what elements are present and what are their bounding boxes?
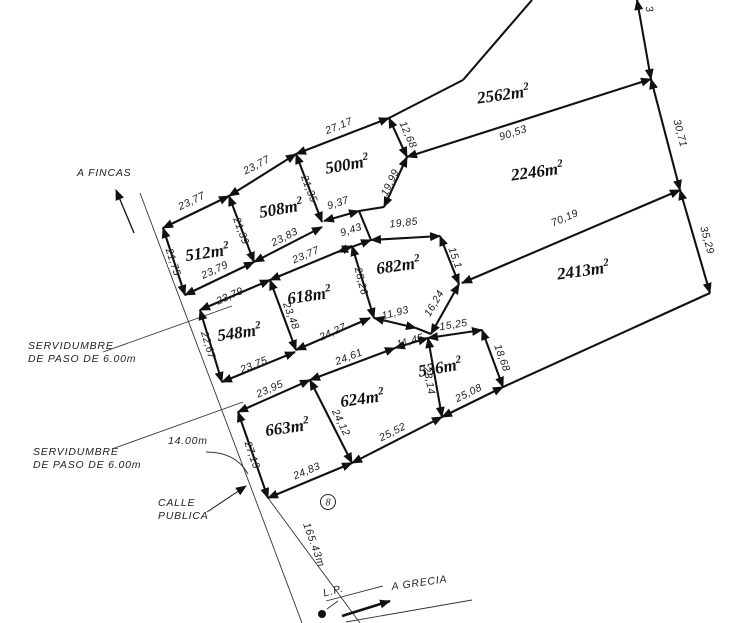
calle-publica-leader-arrow	[207, 486, 246, 512]
edge-dimension-label: 25,08	[452, 382, 484, 406]
parcel-618-label: 618m2	[286, 282, 333, 308]
edge-dimension-label: 24,27	[317, 321, 349, 344]
edge-dimension-label: 70,19	[549, 207, 580, 229]
edge-dimension-label: 25,52	[376, 421, 408, 445]
parcel-663-label: 663m2	[264, 414, 311, 440]
survey-plan-svg: 23,7723,7727,1712,6819,9921,7521,3921,35…	[0, 0, 750, 623]
label-servidumbre-1: SERVIDUMBREDE PASO DE 6.00m	[28, 340, 136, 365]
edge-dimension-label: 30,71	[670, 118, 689, 148]
edge-dimension-label: 15,25	[439, 317, 469, 333]
boundary-edge	[503, 293, 710, 387]
parcel-500-label: 500m2	[323, 150, 371, 177]
grecia-road-lower	[346, 600, 472, 622]
parcel-682-label: 682m2	[375, 252, 422, 278]
boundary-edge	[359, 207, 384, 211]
label-calle-publica: CALLEPUBLICA	[158, 497, 209, 522]
boundary-edge	[463, 0, 532, 80]
parcel-edge	[374, 318, 416, 328]
edge-dimension-label: 35,29	[697, 225, 716, 255]
parcel-edge	[428, 330, 482, 338]
a-fincas-arrow	[116, 190, 134, 233]
parcel-2246-label: 2246m2	[509, 157, 565, 184]
label-165m: 165.43m	[300, 521, 327, 569]
parcel-624-label: 624m2	[339, 385, 386, 411]
parcel-2413-label: 2413m2	[555, 256, 611, 283]
label-14m: 14.00m	[168, 435, 208, 447]
edge-dimension-label: 12,68	[397, 119, 419, 150]
lp-leader	[327, 601, 338, 609]
edge-dimension-label: 3	[642, 5, 655, 14]
edge-dimension-label: 11,93	[380, 304, 410, 322]
survey-plan-page: 23,7723,7727,1712,6819,9921,7521,3921,35…	[0, 0, 750, 623]
edge-dimension-label: 23,77	[240, 153, 272, 178]
edge-dimension-label: 23,77	[290, 244, 322, 267]
boundary-edge	[389, 80, 463, 118]
edge-dimension-label: 9,43	[339, 221, 364, 239]
parcel-548-label: 548m2	[216, 319, 263, 345]
parcel-edge	[324, 211, 359, 221]
edge-dimension-label: 28,26	[351, 265, 370, 296]
label-a-fincas: A FINCAS	[76, 167, 131, 179]
edge-dimension-label: 18,68	[491, 343, 512, 374]
edge-dimension-label: 22,67	[198, 329, 218, 361]
edge-dimension-label: 11,45	[395, 332, 425, 351]
edge-dimension-label: 19,85	[389, 216, 418, 231]
edge-dimension-label: 27,13	[241, 439, 262, 471]
lp-boundary-dot	[318, 610, 326, 618]
edge-dimension-label: 19,99	[379, 167, 402, 198]
parcel-edge	[371, 236, 440, 240]
parcel-2562-label: 2562m2	[475, 80, 531, 107]
parcel-508-label: 508m2	[257, 194, 305, 221]
edge-dimension-label: 9,37	[326, 194, 351, 212]
edge-dimension-label: 23,79	[214, 285, 246, 308]
edge-dimension-label: 24,83	[291, 460, 323, 482]
edge-dimension-label: 21,39	[230, 215, 251, 247]
label-a-grecia: A GRECIA	[390, 573, 448, 593]
edge-dimension-label: 23,75	[238, 354, 270, 376]
lot-number-label: 8	[326, 498, 331, 509]
label-servidumbre-2: SERVIDUMBREDE PASO DE 6.00m	[33, 446, 141, 471]
parcel-536-label: 536m2	[416, 353, 464, 380]
